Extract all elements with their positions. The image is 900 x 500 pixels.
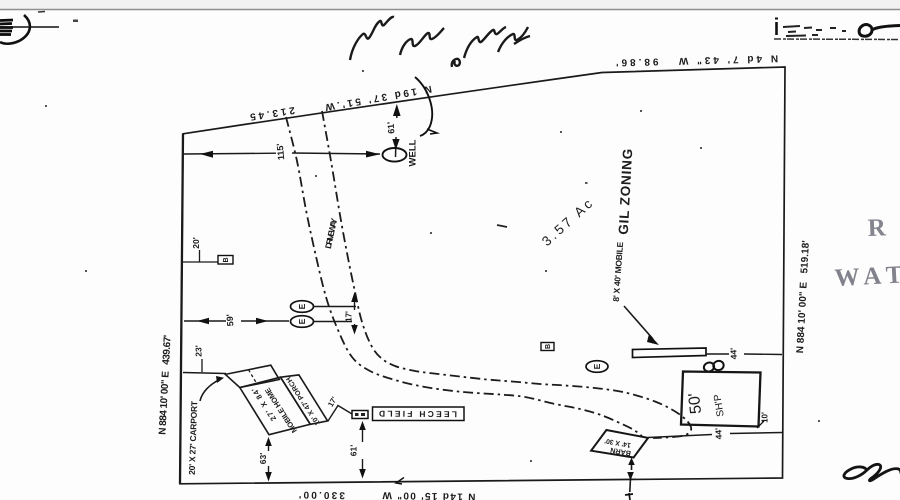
- svg-text:61': 61': [386, 121, 397, 134]
- svg-text:14' X 30': 14' X 30': [604, 437, 632, 449]
- svg-text:E: E: [297, 318, 307, 324]
- svg-text:61': 61': [349, 445, 359, 456]
- svg-text:213.45: 213.45: [249, 104, 296, 122]
- svg-text:B: B: [545, 344, 552, 349]
- svg-text:50': 50': [686, 392, 705, 415]
- svg-text:59': 59': [225, 314, 236, 327]
- svg-text:44': 44': [713, 428, 724, 440]
- svg-text:LEECH FIELD: LEECH FIELD: [379, 409, 457, 420]
- svg-text:N 4d 7' 43" W 98.86': N 4d 7' 43" W 98.86': [616, 52, 778, 67]
- svg-text:B: B: [223, 257, 230, 262]
- svg-text:N 884 10' 00" E 519.18': N 884 10' 00" E 519.18': [795, 240, 812, 353]
- svg-text:GIL ZONING: GIL ZONING: [616, 148, 635, 235]
- svg-text:E: E: [592, 363, 602, 369]
- svg-text:SH'P: SH'P: [712, 393, 726, 417]
- svg-text:8' X 40' MOBILE: 8' X 40' MOBILE: [611, 241, 625, 302]
- svg-text:20' X 27' CARPORT: 20' X 27' CARPORT: [187, 400, 200, 475]
- svg-text:N 884 10' 00" E 439.67': N 884 10' 00" E 439.67': [157, 335, 173, 435]
- svg-text:23': 23': [194, 345, 204, 356]
- svg-text:N 14d 15' 00" W: N 14d 15' 00" W: [382, 489, 476, 500]
- svg-text:R: R: [867, 214, 887, 242]
- svg-text:115': 115': [275, 143, 286, 160]
- svg-text:20': 20': [191, 237, 201, 248]
- svg-text:E: E: [297, 303, 307, 309]
- svg-text:10': 10': [761, 412, 770, 423]
- svg-text:WAT: WAT: [834, 261, 900, 292]
- svg-text:WELL: WELL: [408, 139, 419, 166]
- svg-text:330.00': 330.00': [299, 489, 345, 500]
- svg-text:N 19d 37' 51'.W: N 19d 37' 51'.W: [324, 83, 433, 113]
- svg-text:63': 63': [258, 453, 268, 464]
- svg-text:DRIVEWAY: DRIVEWAY: [323, 217, 339, 250]
- svg-text:17': 17': [345, 311, 354, 322]
- svg-text:3.57 Ac: 3.57 Ac: [539, 196, 595, 249]
- svg-text:44': 44': [728, 348, 738, 360]
